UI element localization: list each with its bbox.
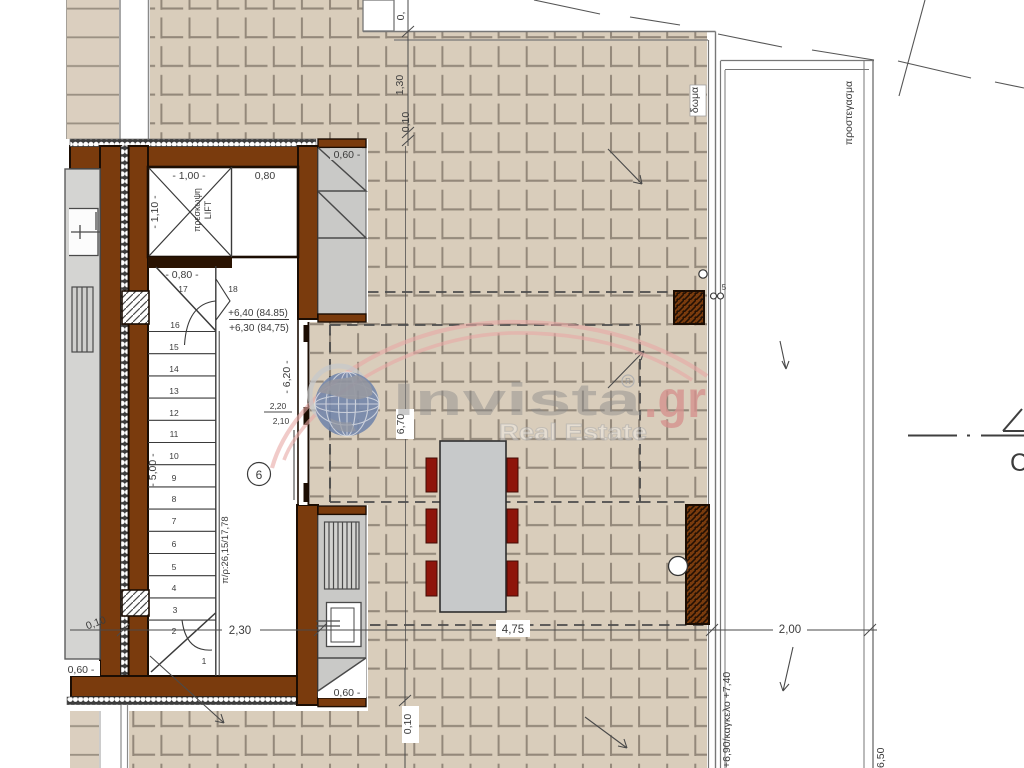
svg-text:6: 6 bbox=[172, 539, 177, 549]
svg-text:2: 2 bbox=[172, 626, 177, 636]
svg-text:0,60 -: 0,60 - bbox=[334, 149, 361, 161]
svg-text:7: 7 bbox=[172, 516, 177, 526]
svg-text:- 5,00 -: - 5,00 - bbox=[147, 453, 159, 487]
svg-text:13: 13 bbox=[169, 386, 179, 396]
svg-text:6,50: 6,50 bbox=[875, 747, 887, 768]
svg-text:δωμα: δωμα bbox=[689, 87, 701, 113]
svg-text:+6,90/καγκελο +7,40: +6,90/καγκελο +7,40 bbox=[721, 672, 733, 768]
svg-text:Real Estate: Real Estate bbox=[499, 419, 647, 445]
svg-text:2,30: 2,30 bbox=[229, 625, 251, 637]
svg-text:0,10: 0,10 bbox=[402, 714, 414, 735]
svg-text:- 6,20 -: - 6,20 - bbox=[281, 360, 293, 394]
svg-text:4,75: 4,75 bbox=[502, 624, 524, 636]
svg-text:1,30: 1,30 bbox=[394, 75, 406, 96]
svg-text:0,60 -: 0,60 - bbox=[68, 664, 95, 676]
svg-text:προστεγασμα: προστεγασμα bbox=[843, 81, 855, 145]
svg-text:5: 5 bbox=[722, 283, 727, 292]
svg-text:π/ρ:26,15/17,78: π/ρ:26,15/17,78 bbox=[220, 516, 231, 583]
svg-text:0,60 -: 0,60 - bbox=[334, 687, 361, 699]
svg-text:16: 16 bbox=[170, 320, 180, 330]
svg-text:10: 10 bbox=[169, 451, 179, 461]
svg-text:1: 1 bbox=[202, 656, 207, 666]
svg-text:+6,30 (84,75): +6,30 (84,75) bbox=[229, 323, 289, 334]
svg-text:πρεσκωψη: πρεσκωψη bbox=[192, 188, 202, 232]
svg-text:9: 9 bbox=[172, 473, 177, 483]
svg-text:LIFT: LIFT bbox=[203, 200, 213, 219]
svg-text:12: 12 bbox=[169, 408, 179, 418]
svg-text:17: 17 bbox=[178, 284, 188, 294]
svg-text:6: 6 bbox=[256, 468, 263, 482]
svg-text:0,10: 0,10 bbox=[400, 112, 412, 133]
svg-text:0,: 0, bbox=[395, 12, 407, 21]
svg-text:3: 3 bbox=[173, 605, 178, 615]
svg-text:- 1,00 -: - 1,00 - bbox=[172, 170, 206, 182]
svg-text:5: 5 bbox=[172, 562, 177, 572]
svg-text:Invista: Invista bbox=[393, 374, 643, 425]
svg-text:- 1,10 -: - 1,10 - bbox=[149, 195, 161, 229]
svg-text:18: 18 bbox=[228, 284, 238, 294]
svg-text:8: 8 bbox=[172, 494, 177, 504]
svg-text:+6,40 (84.85): +6,40 (84.85) bbox=[228, 308, 288, 319]
svg-text:- 0,80 -: - 0,80 - bbox=[165, 269, 199, 281]
svg-text:15: 15 bbox=[169, 342, 179, 352]
svg-text:R: R bbox=[625, 377, 631, 386]
svg-text:11: 11 bbox=[170, 429, 179, 439]
svg-text:2,10: 2,10 bbox=[273, 416, 290, 426]
svg-text:2,20: 2,20 bbox=[270, 401, 287, 411]
svg-text:0,80: 0,80 bbox=[255, 170, 276, 182]
svg-text:.gr: .gr bbox=[644, 371, 706, 429]
svg-text:C: C bbox=[1010, 449, 1024, 477]
svg-text:4: 4 bbox=[172, 583, 177, 593]
svg-text:2,00: 2,00 bbox=[779, 624, 801, 636]
svg-text:14: 14 bbox=[169, 364, 179, 374]
